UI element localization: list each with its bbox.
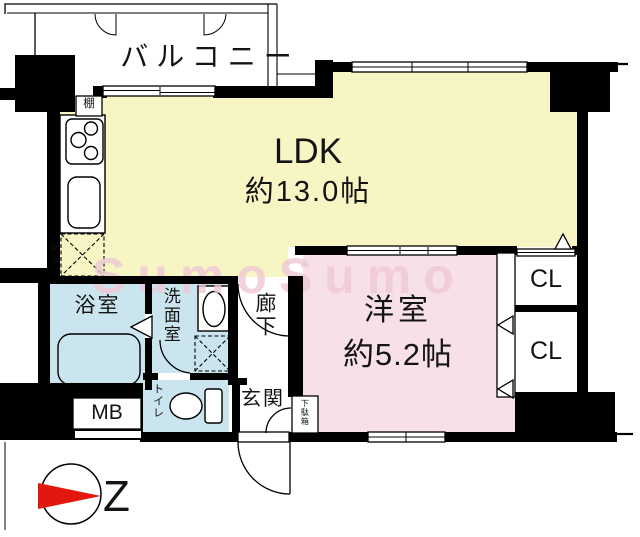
hallway-label: 廊下	[253, 292, 275, 338]
balcony-label: バルコニー	[110, 42, 310, 71]
toilet-label: トイレ	[151, 383, 163, 419]
floor-plan: SumoSumo	[0, 0, 640, 537]
closet-upper-label: CL	[515, 266, 577, 292]
kitchen-sink-icon	[68, 177, 100, 228]
western-room-label: 洋室	[298, 295, 498, 327]
compass-north-label: Z	[103, 474, 130, 520]
ldk-size-label: 約13.0帖	[208, 177, 408, 207]
entrance-label: 玄関	[234, 389, 292, 410]
balcony-partition-arc	[204, 14, 226, 35]
toilet-bowl-icon	[170, 393, 202, 419]
pipe-space-label: PS	[49, 243, 58, 267]
shoe-cabinet-label: 下駄箱	[300, 399, 308, 426]
bathroom-label: 浴室	[50, 295, 145, 317]
ldk-floor	[60, 96, 577, 247]
entrance-doorway	[238, 432, 289, 442]
ldk-label: LDK	[208, 134, 408, 171]
washroom-label: 洗面室	[161, 287, 179, 344]
toilet-tank-icon	[205, 389, 222, 423]
closet-lower-label: CL	[515, 338, 577, 364]
western-room-size-label: 約5.2帖	[298, 339, 498, 372]
compass-icon	[38, 464, 101, 524]
shelf-label: 棚	[76, 98, 102, 110]
balcony-partition-arc	[95, 14, 116, 35]
meter-box-label: MB	[73, 402, 141, 424]
